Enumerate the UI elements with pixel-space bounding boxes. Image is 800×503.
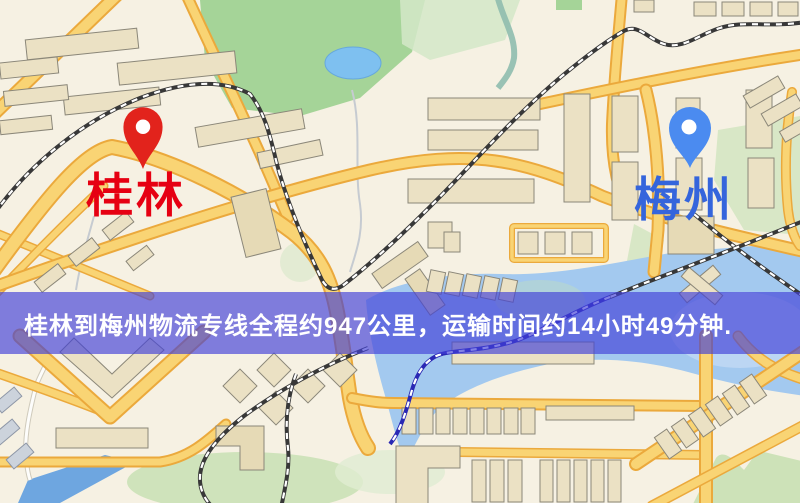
destination-city-label: 梅州 [634, 176, 734, 223]
map-canvas [0, 0, 800, 503]
destination-pin-hole [682, 120, 697, 135]
origin-city-label: 桂林 [86, 172, 186, 219]
route-info-text: 桂林到梅州物流专线全程约947公里，运输时间约14小时49分钟. [0, 306, 732, 341]
origin-pin-hole [136, 120, 150, 134]
route-info-banner: 桂林到梅州物流专线全程约947公里，运输时间约14小时49分钟. [0, 292, 800, 354]
logistics-route-map: 桂林 梅州 桂林到梅州物流专线全程约947公里，运输时间约14小时49分钟. [0, 0, 800, 503]
